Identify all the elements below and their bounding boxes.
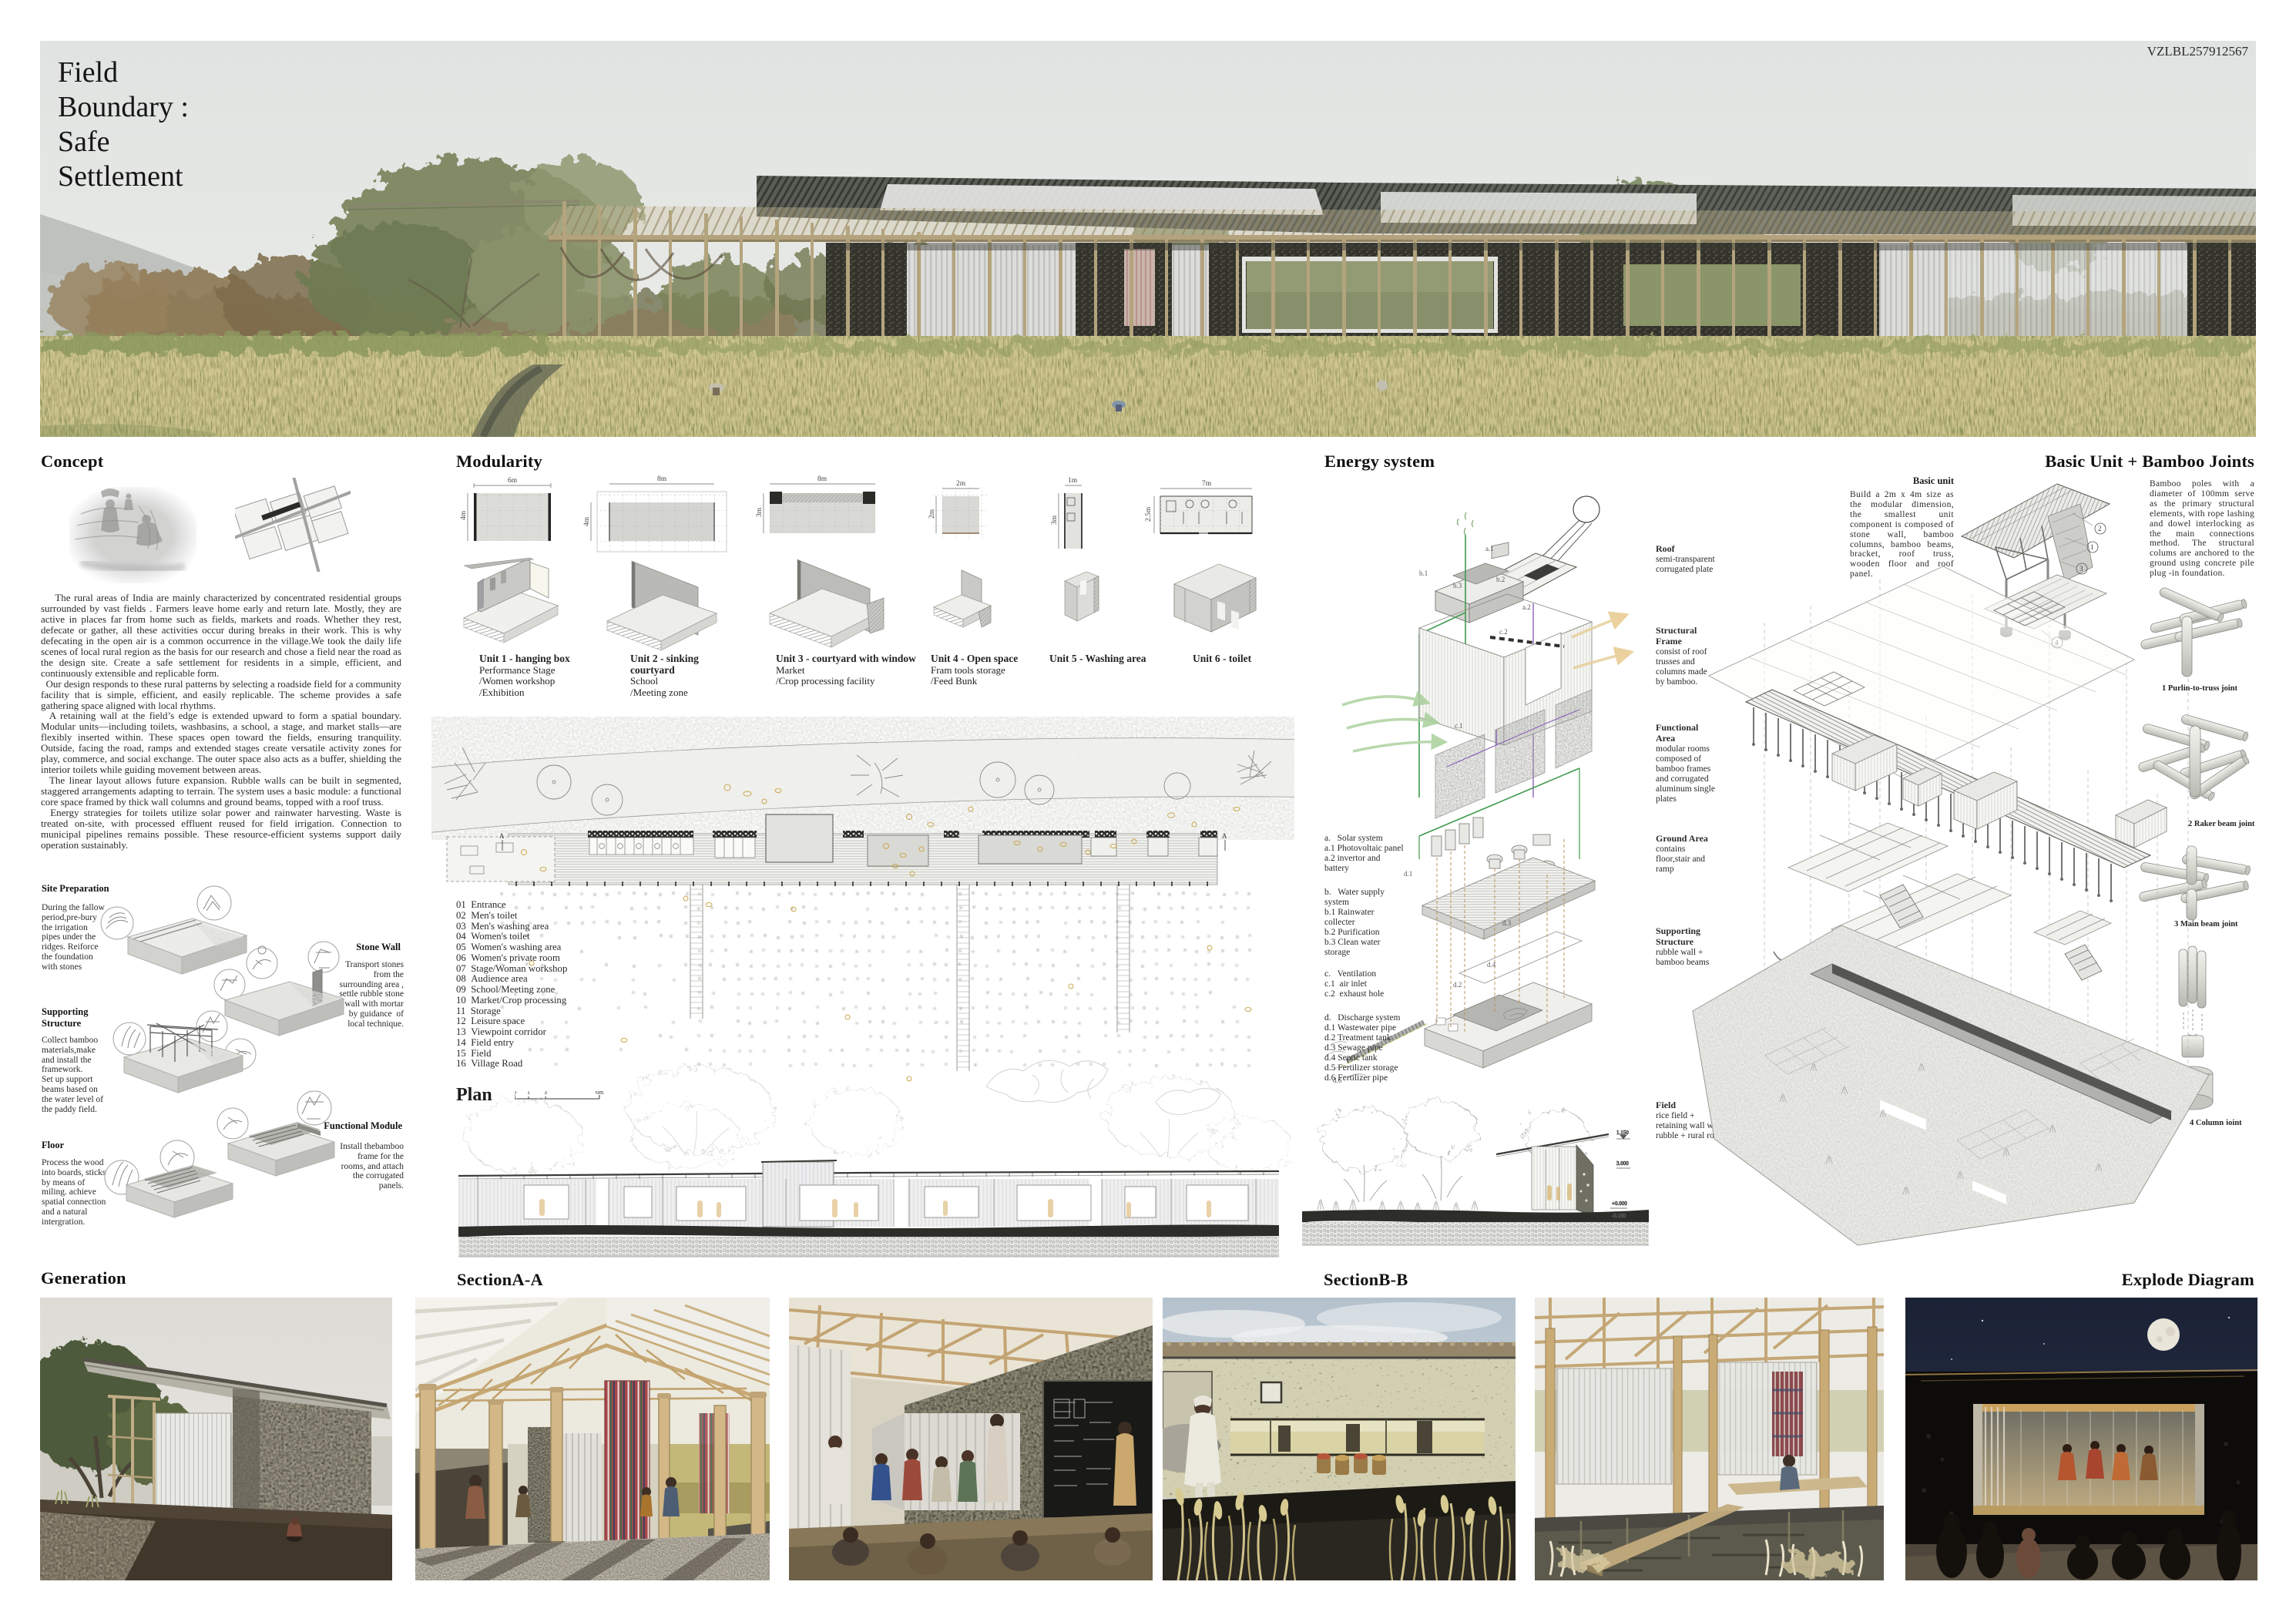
svg-text:a.1: a.1	[1485, 545, 1494, 552]
svg-text:c.1: c.1	[1455, 722, 1463, 730]
svg-text:2m: 2m	[956, 480, 966, 488]
svg-text:b.3: b.3	[1453, 582, 1462, 589]
svg-text:+0.000: +0.000	[1612, 1201, 1627, 1207]
svg-text:c.2: c.2	[1499, 628, 1508, 636]
svg-text:-0.150: -0.150	[1612, 1213, 1626, 1219]
svg-text:a.2: a.2	[1522, 603, 1531, 611]
svg-text:8m: 8m	[657, 475, 667, 483]
svg-text:4m: 4m	[583, 516, 591, 526]
svg-text:A: A	[499, 832, 505, 840]
svg-text:2m: 2m	[928, 509, 936, 519]
svg-text:3m: 3m	[1051, 515, 1059, 525]
svg-text:b.1: b.1	[1419, 569, 1428, 577]
svg-text:4m: 4m	[460, 510, 468, 520]
svg-text:1m: 1m	[1068, 477, 1078, 485]
svg-text:7m: 7m	[1202, 480, 1212, 488]
svg-text:6m: 6m	[508, 477, 518, 485]
svg-text:A: A	[1222, 832, 1227, 840]
svg-text:3m: 3m	[756, 507, 764, 517]
svg-text:1.150: 1.150	[1616, 1130, 1629, 1136]
svg-text:2.5m: 2.5m	[1145, 506, 1153, 522]
svg-text:8m: 8m	[817, 475, 827, 483]
svg-text:3.000: 3.000	[1616, 1160, 1629, 1167]
svg-text:d.3: d.3	[1502, 919, 1512, 927]
svg-text:b.2: b.2	[1496, 576, 1505, 583]
svg-text:d.2: d.2	[1453, 981, 1462, 989]
svg-text:d.4: d.4	[1487, 961, 1496, 969]
